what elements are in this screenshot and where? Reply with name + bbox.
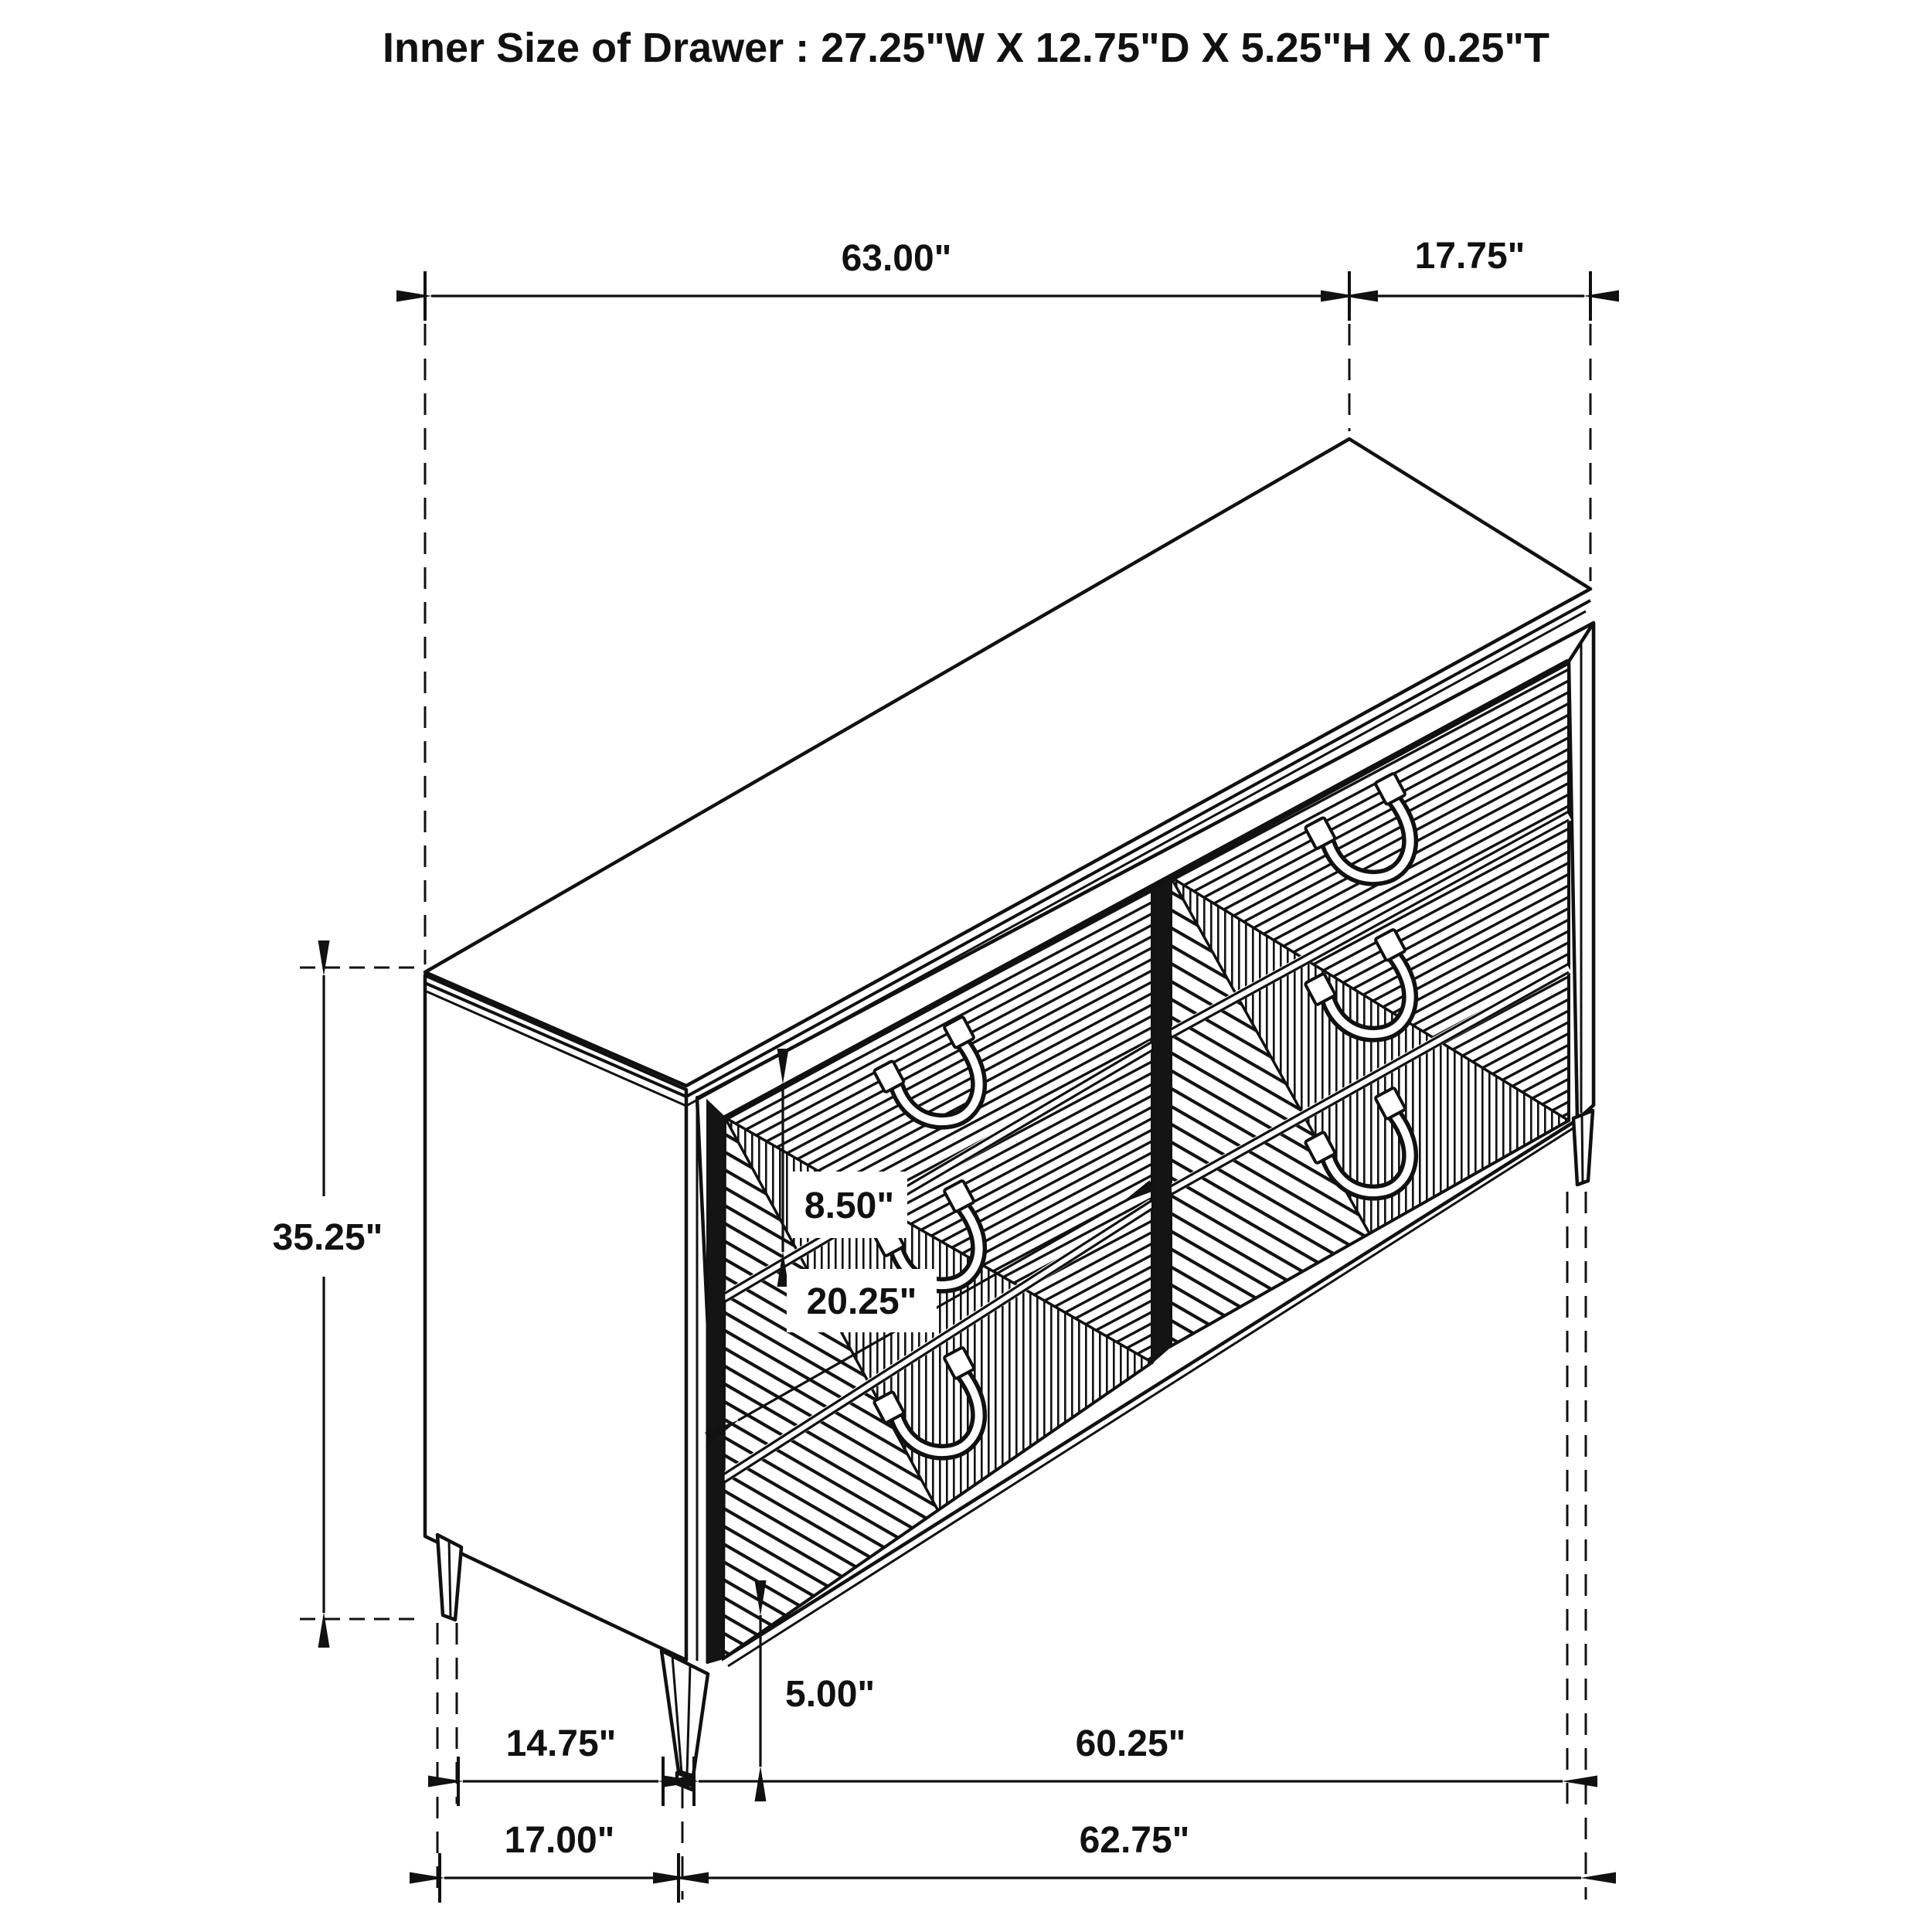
drawing-title: Inner Size of Drawer : 27.25"W X 12.75"D… <box>383 25 1549 71</box>
left-stile <box>707 1100 725 1663</box>
dimension-side-base-depth: 14.75" <box>463 1723 658 1781</box>
dimension-front-base-width: 60.25" <box>699 1723 1563 1781</box>
drawing-page: 63.00" 17.75" 35.25" 8.50" 20.25" <box>0 0 1932 1932</box>
dimension-label: 20.25" <box>807 1281 917 1322</box>
back-left-leg-edge <box>449 1539 451 1617</box>
dimension-label: 17.75" <box>1415 236 1526 277</box>
dimension-leg-height: 5.00" <box>760 1615 875 1767</box>
dimension-label: 62.75" <box>1080 1820 1190 1861</box>
dimension-label: 8.50" <box>804 1185 894 1226</box>
dimension-top-depth: 17.75" <box>1355 236 1584 296</box>
dimension-label: 35.25" <box>273 1217 383 1258</box>
dimension-top-width: 63.00" <box>431 238 1343 296</box>
dimension-label: 5.00" <box>785 1674 875 1715</box>
dimension-overall-height: 35.25" <box>273 968 421 1619</box>
dimension-label: 63.00" <box>842 238 952 279</box>
dimension-base-total-width: 62.75" <box>688 1820 1581 1878</box>
dimension-label: 14.75" <box>506 1723 617 1764</box>
center-stile <box>1152 877 1171 1362</box>
front-left-leg <box>662 1651 708 1776</box>
dresser-cabinet <box>425 439 1594 1790</box>
front-right-leg-edge <box>1582 1115 1583 1182</box>
dimension-label: 60.25" <box>1076 1723 1186 1764</box>
dimension-base-total-depth: 17.00" <box>444 1820 674 1878</box>
dresser-technical-drawing: 63.00" 17.75" 35.25" 8.50" 20.25" <box>0 0 1932 1932</box>
dimension-label: 17.00" <box>505 1820 615 1861</box>
